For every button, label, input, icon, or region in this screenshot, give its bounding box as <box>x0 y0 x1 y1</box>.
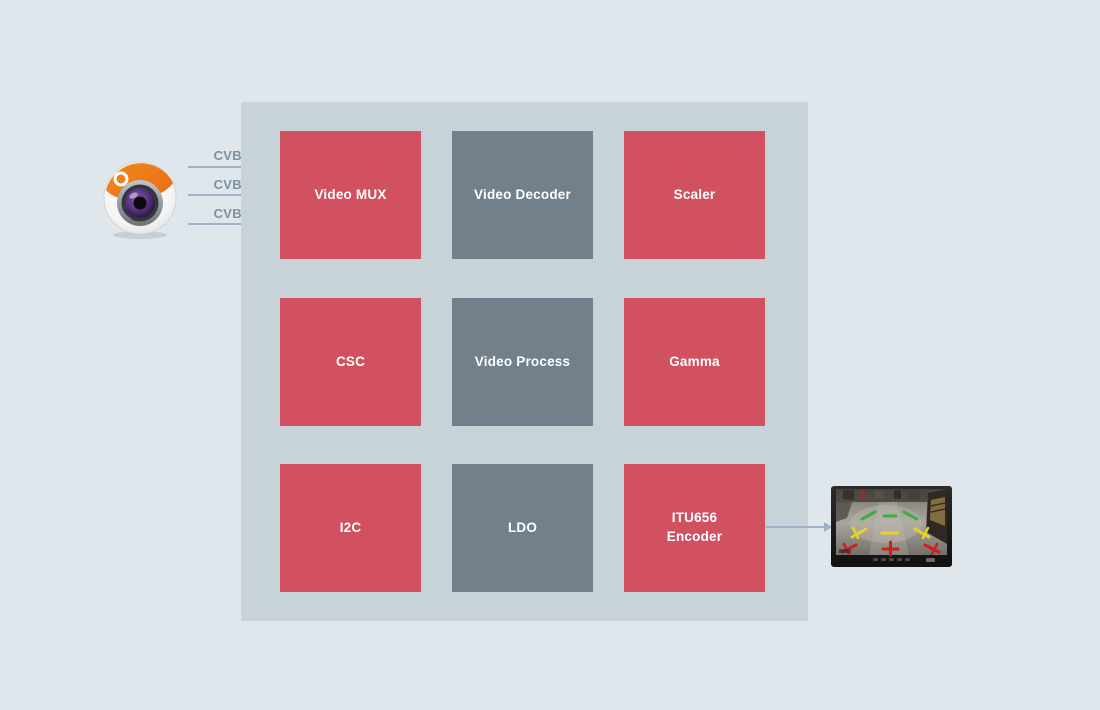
chip-container: Video MUX Video Decoder Scaler CSC Video… <box>241 102 808 621</box>
block-csc: CSC <box>280 298 421 426</box>
arrow-output <box>766 526 824 528</box>
block-label: Video Process <box>475 353 570 372</box>
block-ldo: LDO <box>452 464 593 592</box>
block-itu656-encoder: ITU656 Encoder <box>624 464 765 592</box>
block-label: LDO <box>508 519 537 538</box>
block-video-mux: Video MUX <box>280 131 421 259</box>
diagram-canvas: CVBS0 CVBS1 CVBS2 Video MUX Video Decode… <box>0 0 1100 710</box>
block-label: Scaler <box>674 186 716 205</box>
block-scaler: Scaler <box>624 131 765 259</box>
rearview-monitor-icon <box>831 486 952 567</box>
block-i2c: I2C <box>280 464 421 592</box>
block-video-process: Video Process <box>452 298 593 426</box>
block-video-decoder: Video Decoder <box>452 131 593 259</box>
block-gamma: Gamma <box>624 298 765 426</box>
rearview-monitor-svg <box>831 486 952 567</box>
block-label: CSC <box>336 353 365 372</box>
camera-icon-svg <box>100 158 180 240</box>
block-label: Gamma <box>669 353 720 372</box>
camera-icon <box>100 158 180 240</box>
block-label: ITU656 Encoder <box>667 509 722 547</box>
block-label: Video MUX <box>314 186 386 205</box>
block-label: I2C <box>340 519 362 538</box>
block-label: Video Decoder <box>474 186 571 205</box>
